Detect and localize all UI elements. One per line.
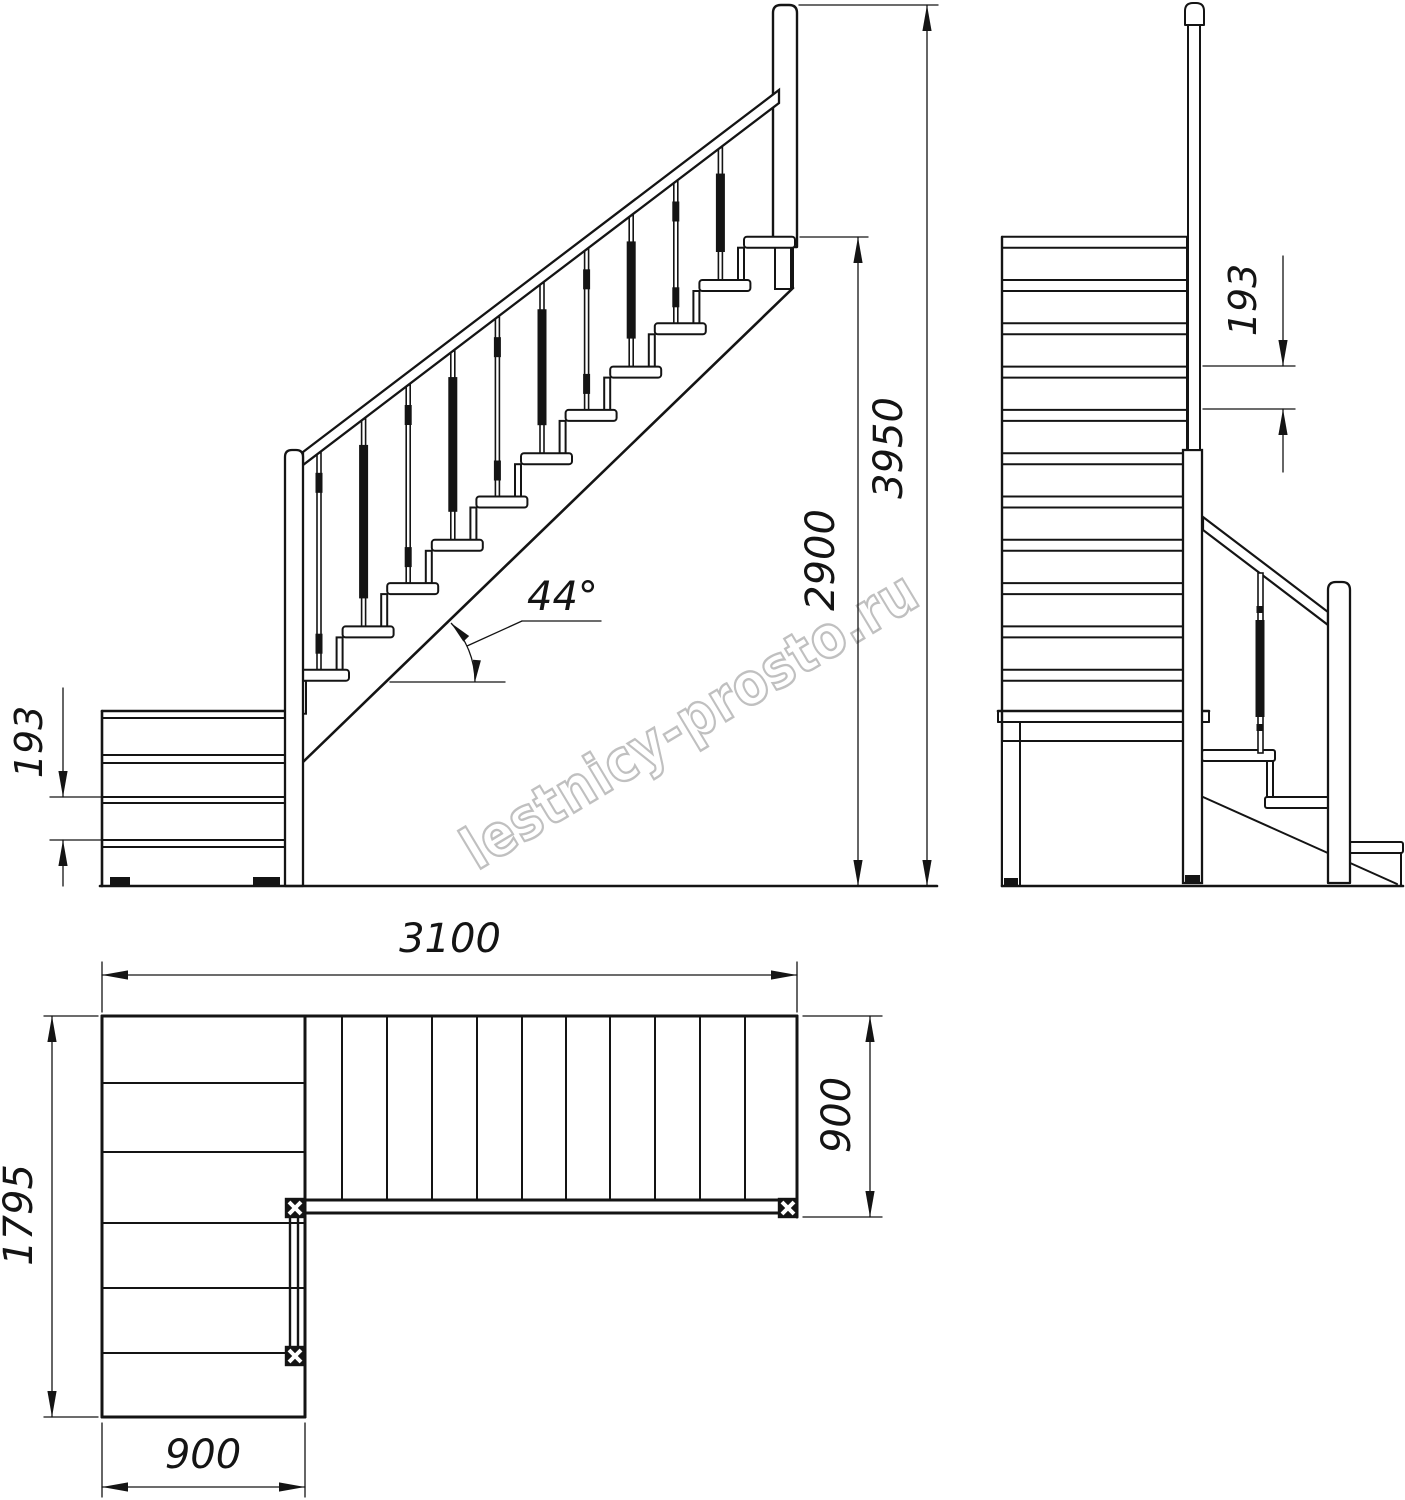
dim-riser-side: 193 xyxy=(7,706,51,779)
stair-drawing-page: lestnicy-prosto.ru 193 44° 2900 3950 193… xyxy=(0,0,1405,1500)
dim-overall-height: 3950 xyxy=(866,397,912,499)
dim-riser-front: 193 xyxy=(1221,264,1265,337)
dim-lower-flight-width: 900 xyxy=(165,1432,241,1478)
dim-plan-depth: 1795 xyxy=(0,1164,42,1266)
dim-stair-angle: 44° xyxy=(527,574,598,620)
dim-plan-length: 3100 xyxy=(399,916,501,962)
dim-flight-rise: 2900 xyxy=(798,509,844,611)
stair-technical-drawing: lestnicy-prosto.ru 193 44° 2900 3950 193… xyxy=(0,0,1405,1500)
dim-main-flight-width: 900 xyxy=(814,1077,860,1153)
side-elevation-view xyxy=(100,5,937,886)
plan-view xyxy=(102,1016,797,1417)
front-elevation-view xyxy=(998,3,1403,886)
